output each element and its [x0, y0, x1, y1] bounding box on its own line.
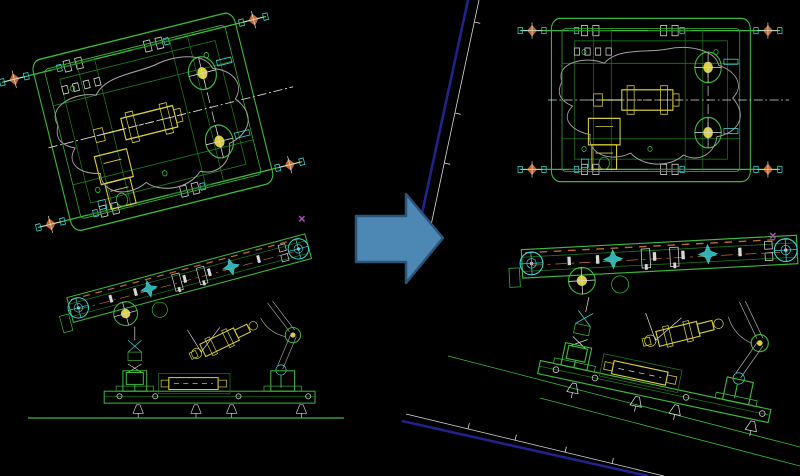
point-marker-x: × — [769, 230, 777, 243]
cad-drawing-svg — [0, 0, 800, 476]
border-line-top — [421, 0, 480, 230]
transform-arrow-icon — [356, 194, 443, 283]
point-marker-x: × — [298, 213, 306, 226]
border-line-bottom — [402, 414, 664, 476]
plan-view-after — [518, 18, 789, 181]
side-view-after — [481, 177, 800, 439]
cad-composite: × × — [0, 0, 800, 476]
after-panel — [402, 0, 800, 476]
before-panel — [0, 1, 344, 418]
plan-view-before — [0, 1, 314, 240]
side-view-before — [55, 234, 316, 418]
ground-line-after-1 — [448, 356, 800, 447]
